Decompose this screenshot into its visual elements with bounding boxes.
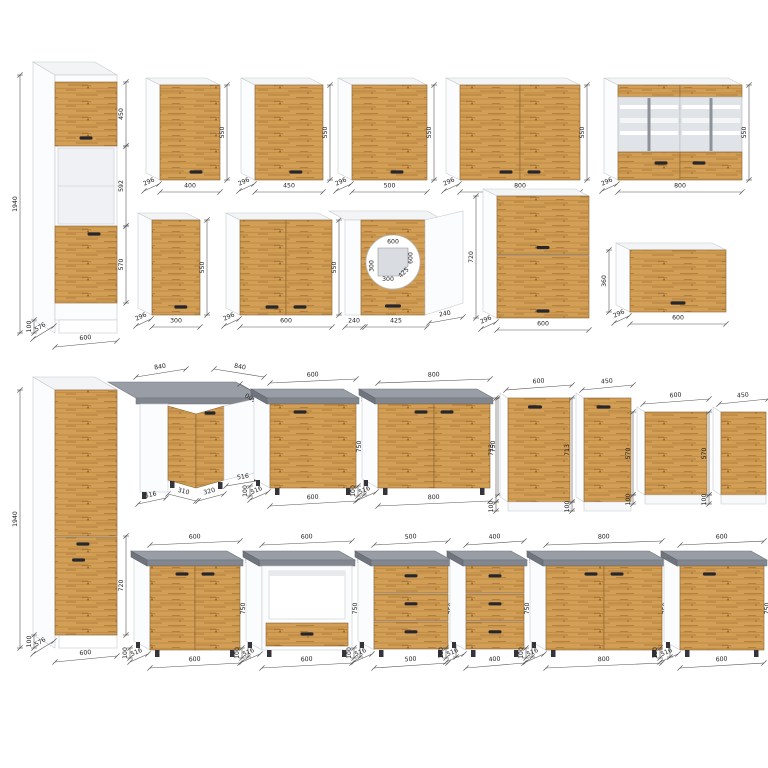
svg-text:100: 100	[625, 494, 632, 506]
svg-text:500: 500	[384, 183, 396, 190]
module-wall-flip-cabinet-600: 360296600	[601, 243, 729, 327]
module-base-cabinet-600-two-door: 600750516100600	[122, 533, 251, 670]
svg-text:500: 500	[405, 533, 417, 541]
svg-text:450: 450	[118, 108, 125, 120]
module-front-panel-600x570: 600570100	[625, 392, 712, 507]
svg-text:840: 840	[154, 363, 167, 372]
module-front-panel-450x713: 450713100	[564, 377, 636, 513]
svg-text:600: 600	[672, 315, 684, 322]
module-wall-cabinet-300: 296300550	[133, 213, 210, 330]
module-base-cabinet-800: 800750516100800	[350, 371, 501, 508]
svg-text:713: 713	[488, 444, 495, 456]
module-wall-cabinet-450: 296450550	[236, 78, 333, 195]
svg-text:600: 600	[387, 239, 399, 246]
svg-text:100: 100	[26, 321, 33, 333]
svg-text:600: 600	[189, 533, 201, 541]
svg-text:600: 600	[716, 656, 728, 664]
svg-text:100: 100	[652, 647, 659, 659]
svg-text:600: 600	[79, 649, 91, 657]
svg-text:600: 600	[189, 656, 201, 664]
svg-text:600: 600	[79, 334, 91, 342]
svg-text:600: 600	[280, 318, 292, 325]
svg-text:550: 550	[741, 127, 748, 139]
svg-text:100: 100	[518, 647, 525, 659]
svg-text:550: 550	[199, 262, 206, 274]
svg-text:400: 400	[184, 183, 196, 190]
catalog-canvas: 4505925701940100576600296400550296450550…	[0, 0, 768, 768]
svg-text:592: 592	[118, 180, 125, 192]
svg-text:450: 450	[601, 377, 613, 385]
svg-text:296: 296	[442, 176, 456, 187]
svg-text:300: 300	[369, 260, 376, 272]
svg-text:720: 720	[468, 251, 475, 263]
svg-text:840: 840	[234, 363, 247, 372]
module-base-cabinet-600: 600750516100600	[242, 371, 367, 508]
svg-text:1940: 1940	[12, 196, 19, 212]
svg-text:100: 100	[242, 485, 249, 497]
svg-text:1940: 1940	[12, 511, 19, 527]
svg-text:550: 550	[579, 127, 586, 139]
module-wall-corner-cabinet-600x600: 600600300300425240425240	[329, 211, 466, 330]
svg-text:240: 240	[439, 310, 452, 319]
svg-text:800: 800	[598, 533, 610, 540]
module-front-panel-600x713: 600713100	[488, 378, 575, 514]
svg-text:800: 800	[428, 371, 440, 378]
module-wall-cabinet-500: 296500550	[333, 78, 437, 195]
svg-text:100: 100	[350, 485, 357, 497]
module-base-cabinet-800: 800750516100800	[518, 533, 673, 670]
svg-text:310: 310	[177, 487, 190, 497]
module-tall-oven-cabinet-600: 4505925701940100576600	[12, 62, 129, 350]
svg-text:600: 600	[301, 656, 313, 664]
svg-text:570: 570	[625, 448, 632, 460]
svg-text:296: 296	[334, 176, 348, 187]
svg-text:570: 570	[701, 448, 708, 460]
svg-text:100: 100	[122, 647, 129, 659]
svg-text:100: 100	[26, 636, 33, 648]
svg-text:800: 800	[428, 494, 440, 502]
svg-text:713: 713	[564, 444, 571, 456]
svg-text:600: 600	[307, 371, 319, 379]
svg-text:400: 400	[488, 533, 500, 541]
module-wall-glass-cabinet-800: 296800550	[599, 78, 752, 195]
svg-text:550: 550	[331, 262, 338, 274]
svg-text:450: 450	[737, 391, 750, 399]
svg-text:360: 360	[601, 275, 608, 287]
svg-text:100: 100	[564, 501, 571, 513]
svg-text:425: 425	[390, 318, 402, 325]
svg-text:600: 600	[532, 378, 544, 386]
svg-text:296: 296	[134, 311, 148, 322]
svg-text:550: 550	[426, 127, 433, 139]
svg-text:516: 516	[144, 490, 157, 499]
svg-text:240: 240	[348, 318, 360, 325]
svg-text:300: 300	[382, 276, 394, 283]
svg-text:600: 600	[307, 494, 319, 502]
module-wall-cabinet-600-two-tier: 720296600	[468, 189, 592, 333]
module-wall-cabinet-600: 296600550	[221, 213, 342, 330]
svg-text:516: 516	[237, 473, 250, 482]
module-wall-cabinet-800: 296800550	[441, 78, 590, 195]
svg-text:100: 100	[346, 647, 353, 659]
svg-text:550: 550	[322, 127, 329, 139]
svg-text:500: 500	[404, 656, 416, 664]
svg-text:600: 600	[537, 321, 549, 328]
module-wall-cabinet-400: 296400550	[141, 78, 230, 195]
svg-text:800: 800	[674, 183, 686, 190]
svg-text:320: 320	[203, 487, 216, 497]
svg-text:296: 296	[142, 176, 156, 187]
svg-text:600: 600	[408, 252, 415, 264]
svg-text:800: 800	[514, 183, 526, 190]
svg-text:296: 296	[612, 308, 626, 319]
module-base-cabinet-600-single: 600750516100600	[652, 533, 768, 670]
svg-text:296: 296	[237, 176, 251, 187]
svg-text:550: 550	[219, 127, 226, 139]
svg-text:296: 296	[600, 176, 614, 187]
module-base-oven-cabinet-600: 600750516100600	[234, 533, 363, 670]
svg-text:100: 100	[488, 501, 495, 513]
svg-text:100: 100	[234, 647, 241, 659]
svg-text:600: 600	[669, 392, 681, 400]
svg-text:100: 100	[701, 494, 708, 506]
svg-text:400: 400	[488, 656, 500, 664]
svg-text:720: 720	[118, 580, 125, 592]
svg-text:100: 100	[438, 647, 445, 659]
module-base-corner-cabinet-840: 840840600516310320516	[108, 363, 271, 507]
svg-text:450: 450	[283, 183, 295, 190]
kitchen-cabinet-catalog: 4505925701940100576600296400550296450550…	[0, 0, 768, 768]
svg-text:750: 750	[764, 603, 768, 615]
module-tall-cabinet-600: 7201940100576600	[12, 377, 129, 665]
svg-text:296: 296	[479, 314, 493, 325]
svg-text:600: 600	[716, 533, 728, 541]
svg-text:800: 800	[598, 656, 610, 664]
svg-text:300: 300	[170, 318, 182, 325]
svg-text:600: 600	[301, 533, 313, 541]
svg-text:570: 570	[118, 259, 125, 271]
svg-text:296: 296	[222, 311, 236, 322]
module-front-panel-450x570: 450570100	[701, 391, 768, 506]
